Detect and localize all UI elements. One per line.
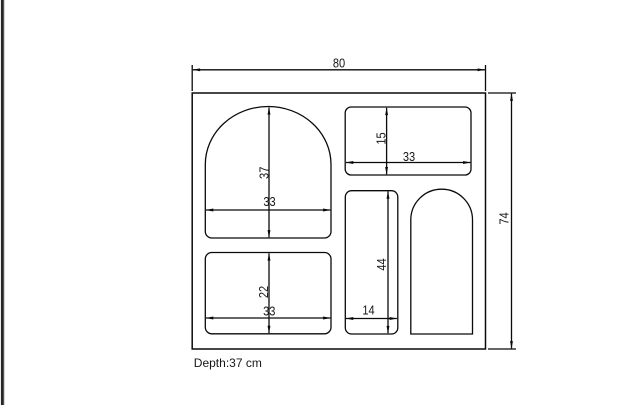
svg-text:15: 15 (373, 132, 388, 144)
svg-text:74: 74 (497, 212, 512, 224)
svg-text:80: 80 (333, 56, 345, 71)
svg-text:14: 14 (362, 303, 374, 318)
svg-text:33: 33 (263, 304, 275, 319)
svg-text:44: 44 (374, 258, 389, 270)
svg-text:33: 33 (403, 149, 415, 164)
svg-text:Depth:37 cm: Depth:37 cm (194, 356, 262, 370)
svg-text:37: 37 (257, 167, 272, 179)
svg-text:22: 22 (256, 286, 271, 298)
svg-text:33: 33 (263, 194, 275, 209)
